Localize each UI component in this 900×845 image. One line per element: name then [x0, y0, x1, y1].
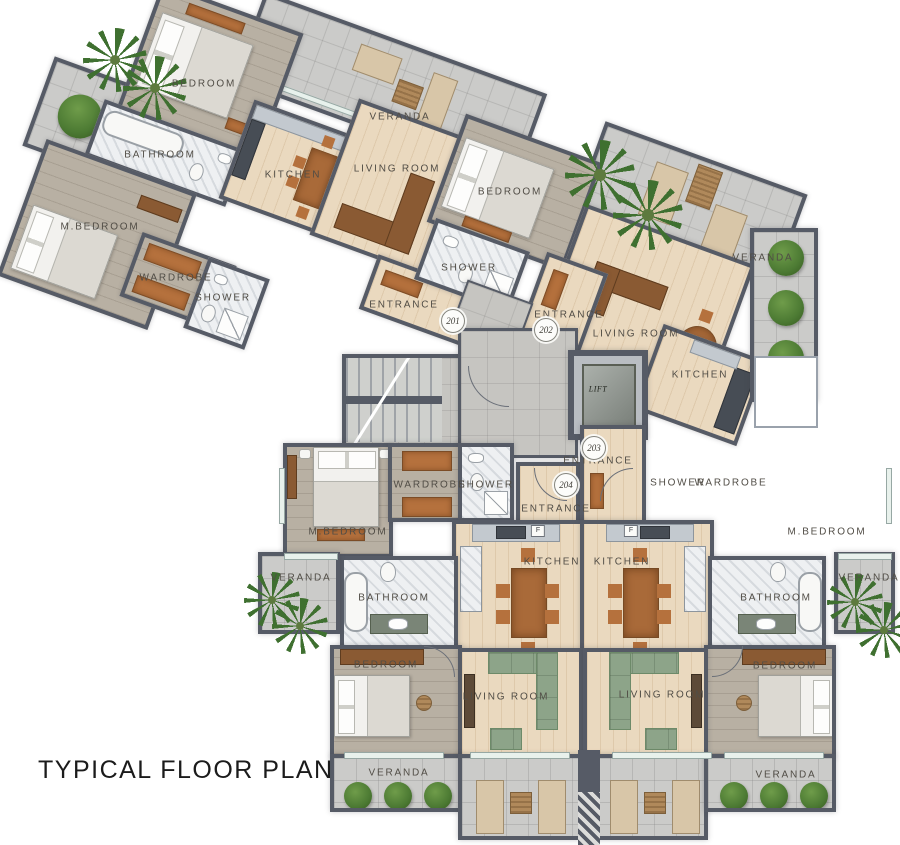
room-label-wardrobe-203: WARDROBE	[695, 478, 768, 489]
room-label-veranda-203-bottom: VERANDA	[756, 770, 817, 781]
coffee-table	[510, 792, 532, 814]
room-label-living-202: LIVING ROOM	[593, 329, 679, 340]
dresser	[136, 195, 182, 223]
room-kitchen-203	[580, 520, 714, 652]
window	[838, 553, 892, 560]
room-label-living-204: LIVING ROOM	[463, 692, 549, 703]
room-veranda-203-bottom-terrace	[584, 754, 708, 840]
hall	[458, 328, 578, 458]
room-label-wardrobe-201: WARDROBE	[140, 273, 213, 284]
stairwell	[342, 354, 462, 450]
room-label-veranda-202: VERANDA	[733, 253, 794, 264]
unit-badge-202: 202	[534, 318, 558, 342]
dresser	[287, 455, 297, 499]
room-label-veranda-201: VERANDA	[370, 112, 431, 123]
light-well	[754, 356, 818, 428]
window	[886, 468, 892, 524]
kitchen-sink	[496, 526, 526, 539]
room-label-m-bedroom-201: M.BEDROOM	[61, 222, 140, 233]
wardrobe-cabinet	[402, 451, 452, 471]
kitchen-counter	[690, 339, 742, 369]
fridge-marker-203: F	[624, 525, 638, 537]
page-title: TYPICAL FLOOR PLAN	[38, 756, 334, 785]
kitchen-hob	[684, 546, 706, 612]
room-veranda-204-bottom-terrace	[458, 754, 582, 840]
double-bed	[313, 447, 379, 527]
kitchen-sink	[640, 526, 670, 539]
room-label-living-203: LIVING ROOM	[619, 690, 705, 701]
sink	[388, 618, 408, 630]
room-veranda-203-bottom	[704, 754, 836, 812]
cabinet	[541, 269, 569, 310]
ottoman	[490, 728, 522, 750]
bush-icon	[720, 782, 748, 810]
window	[284, 553, 338, 560]
room-label-bedroom-204: BEDROOM	[354, 660, 418, 671]
outdoor-sofa	[352, 44, 403, 85]
toilet	[770, 562, 786, 582]
toilet	[199, 303, 218, 325]
double-bed	[334, 675, 410, 737]
room-label-veranda-204-side: VERANDA	[271, 573, 332, 584]
room-label-m-bedroom-204: M.BEDROOM	[309, 527, 388, 538]
room-label-shower-202: SHOWER	[441, 263, 497, 274]
room-label-veranda-204-bottom: VERANDA	[369, 768, 430, 779]
room-label-kitchen-201: KITCHEN	[265, 170, 322, 181]
palm-icon	[272, 598, 328, 654]
room-living-204	[458, 648, 583, 758]
room-kitchen-204	[452, 520, 586, 652]
bush-icon	[344, 782, 372, 810]
bush-icon	[384, 782, 412, 810]
room-m-bedroom-204	[283, 443, 393, 558]
sink	[756, 618, 776, 630]
ottoman	[645, 728, 677, 750]
shower-tray	[216, 308, 249, 341]
palm-icon	[613, 180, 683, 250]
sun-lounger	[538, 780, 566, 834]
room-label-bedroom-202: BEDROOM	[478, 187, 542, 198]
sun-lounger	[672, 780, 700, 834]
pouf	[736, 695, 752, 711]
window	[470, 752, 570, 759]
room-label-m-bedroom-203: M.BEDROOM	[788, 527, 867, 538]
toilet	[380, 562, 396, 582]
kitchen-hob	[460, 546, 482, 612]
toilet	[187, 161, 206, 183]
room-living-203	[583, 648, 708, 758]
room-label-wardrobe-204: WARDROBE	[394, 480, 467, 491]
wardrobe-cabinet	[402, 497, 452, 517]
party-wall	[578, 750, 600, 792]
stair-divider	[346, 396, 442, 404]
window	[612, 752, 712, 759]
lift-label: LIFT	[589, 385, 607, 394]
room-veranda-204-bottom	[330, 754, 462, 812]
room-label-kitchen-204: KITCHEN	[524, 557, 581, 568]
window	[279, 468, 285, 524]
lift-shaft	[582, 364, 636, 428]
room-label-entrance-204: ENTRANCE	[521, 504, 590, 515]
fridge-marker-204: F	[531, 525, 545, 537]
coffee-table	[391, 79, 424, 110]
room-label-kitchen-202: KITCHEN	[672, 370, 729, 381]
bush-icon	[760, 782, 788, 810]
pouf	[416, 695, 432, 711]
unit-badge-203: 203	[582, 436, 606, 460]
room-label-shower-201: SHOWER	[195, 293, 251, 304]
room-label-veranda-203-side: VERANDA	[839, 573, 900, 584]
nightstand	[299, 449, 311, 459]
sink	[441, 234, 460, 250]
room-label-living-201: LIVING ROOM	[354, 164, 440, 175]
double-bed	[10, 204, 118, 299]
bush-icon	[768, 290, 804, 326]
floor-plan: BEDROOM VERANDA BATHROOM KITCHEN LIVING …	[0, 0, 900, 845]
room-label-entrance-201: ENTRANCE	[369, 300, 438, 311]
window	[344, 752, 444, 759]
double-bed	[758, 675, 834, 737]
room-label-kitchen-203: KITCHEN	[594, 557, 651, 568]
room-label-bathroom-204: BATHROOM	[358, 593, 429, 604]
bush-icon	[800, 782, 828, 810]
sun-lounger	[610, 780, 638, 834]
room-label-bedroom-201: BEDROOM	[172, 79, 236, 90]
sink	[468, 453, 484, 463]
palm-icon	[856, 602, 900, 658]
unit-badge-201: 201	[441, 309, 465, 333]
room-label-bedroom-203: BEDROOM	[753, 661, 817, 672]
window	[724, 752, 824, 759]
room-label-bathroom-203: BATHROOM	[740, 593, 811, 604]
tv-unit	[691, 674, 702, 728]
coffee-table	[685, 164, 723, 210]
sink	[213, 273, 230, 287]
room-label-bathroom-201: BATHROOM	[124, 150, 195, 161]
unit-badge-204: 204	[554, 473, 578, 497]
party-wall-hatch	[578, 792, 600, 845]
sun-lounger	[476, 780, 504, 834]
shower-tray	[484, 491, 508, 515]
coffee-table	[644, 792, 666, 814]
bush-icon	[424, 782, 452, 810]
room-label-shower-204: SHOWER	[458, 480, 514, 491]
